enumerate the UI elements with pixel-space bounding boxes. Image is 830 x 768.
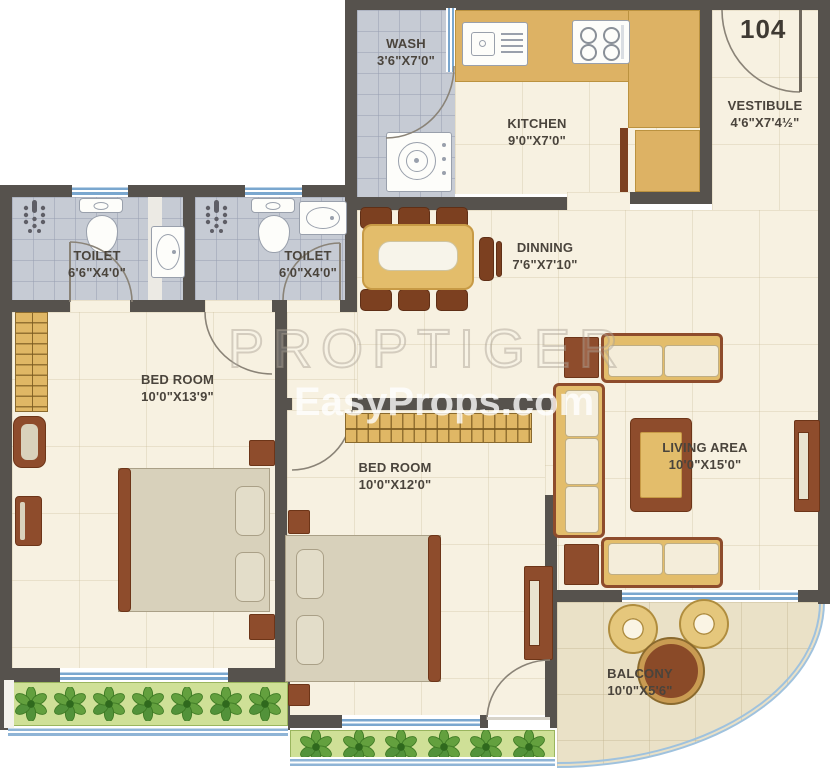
floor-plan: WASH 3'6"X7'0" KITCHEN 9'0"X7'0" VESTIBU… [0,0,830,768]
room-dims: 10'0"X13'9" [115,389,240,406]
kitchen-counter [628,10,700,128]
shower-icon [22,200,48,238]
nightstand [288,684,310,706]
room-name: BED ROOM [115,372,240,389]
room-label-balcony: BALCONY 10'0"X5'6" [570,666,710,700]
dining-chair [398,289,430,311]
floor-door-gap [285,300,340,312]
room-name: DINNING [490,240,600,257]
drum-center [414,158,419,163]
nightstand [249,440,275,466]
wardrobe [15,312,48,412]
sofa-cushion [565,438,599,485]
side-table [564,544,599,585]
room-label-living: LIVING AREA 10'0"X15'0" [640,440,770,474]
room-dims: 9'0"X7'0" [472,133,602,150]
room-name: VESTIBULE [706,98,824,115]
drainboard-line [501,51,523,53]
room-dims: 10'0"X12'0" [330,477,460,494]
plant-icon [170,687,204,721]
plant-icon [131,687,165,721]
room-label-toilet-left: TOILET 6'6"X4'0" [47,248,147,282]
wall [0,300,70,312]
washbasin-icon [156,234,180,270]
pillow [235,486,265,536]
sofa-cushion [608,543,663,575]
room-name: KITCHEN [472,116,602,133]
plant-icon [53,687,87,721]
room-name: LIVING AREA [640,440,770,457]
planter-railing [290,757,555,766]
sofa-cushion [664,543,719,575]
nightstand [288,510,310,534]
wall [557,590,622,602]
pillow [235,552,265,602]
wall [345,0,357,210]
wall [550,715,557,728]
tv-panel [529,580,540,646]
wall [287,398,292,410]
button [442,157,446,161]
stove-edge [621,25,624,59]
wall [0,185,12,730]
wall [818,0,830,604]
room-dims: 10'0"X15'0" [640,457,770,474]
floor-kitchen-passage [567,192,630,212]
shower-icon [204,200,230,238]
toilet-tank-icon [79,198,123,213]
kitchen-door-leaf [620,128,628,192]
room-dims: 4'6"X7'4½" [706,115,824,132]
room-label-bedroom-left: BED ROOM 10'0"X13'9" [115,372,240,406]
room-dims: 6'0"X4'0" [258,265,358,282]
room-label-kitchen: KITCHEN 9'0"X7'0" [472,116,602,150]
burner [603,44,620,61]
room-label-vestibule: VESTIBULE 4'6"X7'4½" [706,98,824,132]
pillow [296,615,324,665]
room-label-bedroom-mid: BED ROOM 10'0"X12'0" [330,460,460,494]
watermark-easyprops: EasyProps.com [294,380,594,425]
wall [630,192,712,204]
tv-panel [798,432,809,500]
balcony-chair [681,601,727,647]
burner [580,44,597,61]
plant-icon [14,687,48,721]
window [72,185,128,197]
wall [798,590,818,602]
sofa-two-seater [601,537,723,588]
dining-chair [360,289,392,311]
gas-stove-icon [572,20,630,64]
wall [0,185,357,197]
washbasin-icon [306,207,340,229]
button [442,143,446,147]
pillow [296,549,324,599]
plant-icon [248,687,282,721]
washing-machine-icon [386,132,452,192]
sofa-cushion [664,345,719,377]
bed-footboard [428,535,441,682]
dresser-top [21,424,38,460]
room-name: BED ROOM [330,460,460,477]
dining-table-top [378,241,458,271]
room-label-wash: WASH 3'6"X7'0" [357,36,455,70]
sink-drain [479,40,486,47]
plant-icon [209,687,243,721]
room-dims: 7'6"X7'10" [490,257,600,274]
wall [130,300,205,312]
planter-railing [8,726,288,736]
floor-door-gap [205,300,272,312]
room-name: WASH [357,36,455,53]
kitchen-sink-icon [462,22,528,66]
planter-edge [4,680,14,728]
button [442,171,446,175]
wall [345,0,830,10]
dining-chair [436,289,468,311]
burner [603,27,620,44]
burner [580,27,597,44]
door-arc [386,66,454,138]
room-name: BALCONY [570,666,710,683]
watermark-proptiger: PROPTIGER [228,318,627,380]
window [622,590,798,602]
planter-box [8,682,288,726]
balcony-door-leaf [487,717,550,720]
plant-icon [92,687,126,721]
window [60,670,228,682]
wall [287,715,342,728]
balcony-chair [610,606,656,652]
room-label-dining: DINNING 7'6"X7'10" [490,240,600,274]
cabinet-panel [20,502,25,540]
room-label-toilet-mid: TOILET 6'0"X4'0" [258,248,358,282]
entry-door-leaf [799,10,802,92]
nightstand [249,614,275,640]
drainboard-line [501,33,523,35]
window [245,185,302,197]
room-dims: 3'6"X7'0" [357,53,455,70]
sofa-cushion [565,486,599,533]
drainboard-line [501,45,523,47]
bed-footboard [118,468,131,612]
room-name: TOILET [258,248,358,265]
room-name: TOILET [47,248,147,265]
toilet-tank-icon [251,198,295,213]
balcony-door-arc [487,660,550,720]
room-dims: 10'0"X5'6" [570,683,710,700]
room-dims: 6'6"X4'0" [47,265,147,282]
unit-number: 104 [740,14,786,45]
drainboard-line [501,39,523,41]
kitchen-platform [635,130,700,192]
window [342,717,480,728]
